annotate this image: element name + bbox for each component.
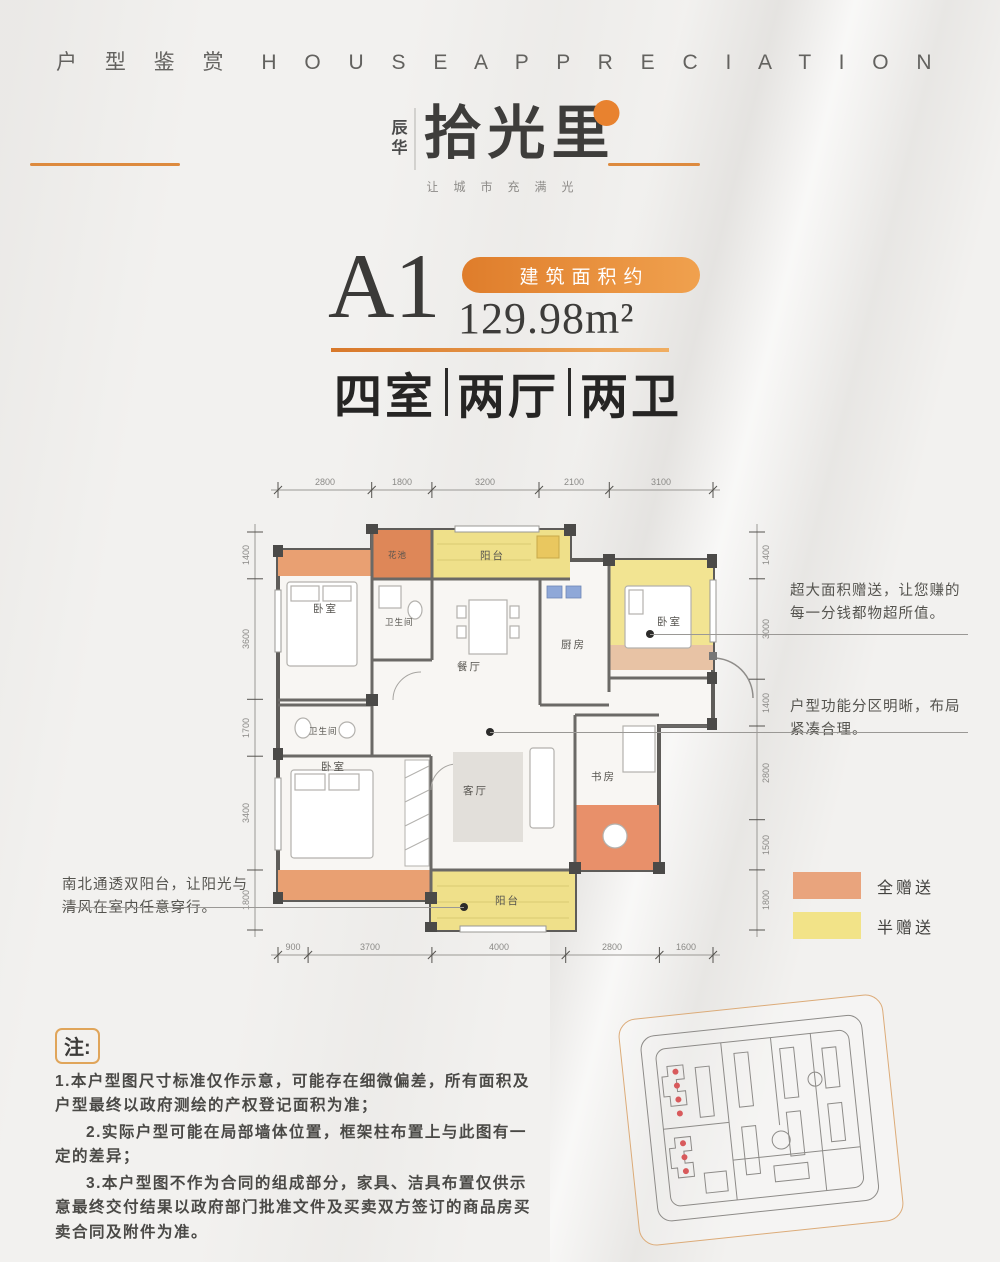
dim-bottom-3: 4000: [489, 942, 509, 952]
room-label-study: 书房: [591, 770, 616, 783]
dim-bottom-4: 2800: [602, 942, 622, 952]
room-label-living: 客厅: [463, 784, 488, 797]
area-badge: 建筑面积约: [462, 257, 700, 293]
legend-label-full-gift: 全赠送: [877, 874, 934, 898]
entry-door-hinge: [709, 652, 717, 660]
dim-top-3: 3200: [475, 477, 495, 487]
dim-right-4: 2800: [761, 763, 771, 783]
wardrobe-hatch: [405, 760, 429, 866]
layout-baths: 两卫: [580, 357, 682, 427]
site-highlight-dots: [672, 1068, 689, 1174]
room-label-bath-mid: 卫生间: [309, 726, 338, 736]
brand-main-text: 拾光里: [423, 101, 615, 166]
decor-line-right: [608, 163, 700, 166]
dim-top-1: 2800: [315, 477, 335, 487]
site-map-svg: [618, 994, 904, 1246]
unit-layout: 四室 两厅 两卫: [334, 357, 682, 427]
brand-tagline: 让城市充满光: [384, 178, 615, 195]
decor-line-left: [30, 163, 180, 166]
dim-right-1: 1400: [761, 545, 771, 565]
area-value: 129.98m²: [458, 293, 634, 344]
page-header: 户 型 鉴 赏 H O U S E A P P R E C I A T I O …: [56, 46, 943, 76]
poster-page: 户 型 鉴 赏 H O U S E A P P R E C I A T I O …: [0, 0, 1000, 1262]
note-item-2: 2.实际户型可能在局部墙体位置，框架柱布置上与此图有一定的差异；: [55, 1121, 537, 1170]
brand-logo: 辰华 拾光里 让城市充满光: [384, 102, 615, 195]
room-label-flower-bed: 花池: [388, 550, 407, 560]
dim-right-2: 3000: [761, 619, 771, 639]
leader-line-balconies: [62, 907, 464, 908]
note-item-1: 1.本户型图尺寸标准仅作示意，可能存在细微偏差，所有面积及户型最终以政府测绘的产…: [55, 1070, 537, 1119]
layout-separator: [445, 368, 448, 416]
brand-side-name: 辰华: [384, 108, 415, 170]
room-label-balcony-bottom: 阳台: [495, 894, 520, 907]
site-map: [617, 993, 905, 1248]
site-roads: [640, 1014, 880, 1222]
room-label-balcony-top: 阳台: [480, 549, 505, 562]
brand-main-name: 拾光里: [423, 102, 615, 166]
room-label-dining: 餐厅: [457, 660, 482, 673]
living-rug: [453, 752, 523, 842]
legend-row-half: 半赠送: [793, 912, 934, 939]
dim-left-2: 3600: [241, 629, 251, 649]
dim-right-3: 1400: [761, 693, 771, 713]
room-label-bedroom-top-right: 卧室: [657, 615, 682, 628]
dim-bottom-5: 1600: [676, 942, 696, 952]
dim-top-2: 1800: [392, 477, 412, 487]
unit-divider-line: [331, 348, 669, 352]
dim-left-1: 1400: [241, 545, 251, 565]
dim-left-3: 1700: [241, 718, 251, 738]
legend-swatch-full-gift: [793, 872, 861, 899]
site-buildings: [660, 1043, 849, 1197]
header-title-en: H O U S E A P P R E C I A T I O N: [261, 51, 942, 74]
dim-bottom-2: 3700: [360, 942, 380, 952]
disclaimer-notes: 注: 1.本户型图尺寸标准仅作示意，可能存在细微偏差，所有面积及户型最终以政府测…: [55, 1028, 537, 1247]
dim-top-4: 2100: [564, 477, 584, 487]
legend-swatch-half-gift: [793, 912, 861, 939]
layout-halls: 两厅: [457, 357, 559, 427]
leader-line-zoning: [490, 732, 968, 733]
room-label-bedroom-top-left: 卧室: [313, 602, 338, 615]
annotation-gift-area: 超大面积赠送，让您赚的每一分钱都物超所值。: [790, 580, 970, 627]
unit-name: A1: [328, 240, 440, 332]
legend-label-half-gift: 半赠送: [877, 914, 934, 938]
legend-row-full: 全赠送: [793, 872, 934, 899]
dim-bottom-1: 900: [285, 942, 300, 952]
dim-top-5: 3100: [651, 477, 671, 487]
floorplan: 卧室 花池 阳台 卫生间 餐厅 厨房 卧室 卫生间 卧室 客厅 书房 阳台: [225, 460, 795, 980]
room-label-bath-top: 卫生间: [385, 617, 414, 627]
dim-left-4: 3400: [241, 803, 251, 823]
room-label-kitchen: 厨房: [561, 638, 586, 651]
room-label-bedroom-master: 卧室: [321, 760, 346, 773]
floorplan-svg: 卧室 花池 阳台 卫生间 餐厅 厨房 卧室 卫生间 卧室 客厅 书房 阳台: [225, 460, 795, 980]
gift-legend: 全赠送 半赠送: [793, 872, 934, 952]
annotation-balconies: 南北通透双阳台，让阳光与清风在室内任意穿行。: [62, 874, 248, 921]
annotation-zoning: 户型功能分区明晰，布局紧凑合理。: [790, 696, 970, 743]
note-tag: 注:: [55, 1028, 100, 1064]
dim-right-6: 1800: [761, 890, 771, 910]
dim-right-5: 1500: [761, 835, 771, 855]
leader-line-gift-area: [650, 634, 968, 635]
layout-rooms: 四室: [334, 357, 436, 427]
header-title-cn: 户 型 鉴 赏: [56, 51, 235, 74]
note-item-3: 3.本户型图不作为合同的组成部分，家具、洁具布置仅供示意最终交付结果以政府部门批…: [55, 1172, 537, 1245]
layout-separator: [568, 368, 571, 416]
entry-door-arc: [713, 658, 753, 698]
brand-sun-dot-icon: [594, 100, 620, 126]
